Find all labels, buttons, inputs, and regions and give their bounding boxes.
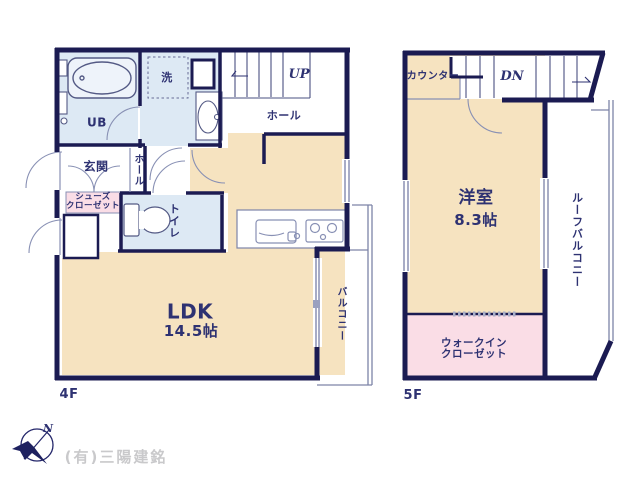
room-area-ldk: 14.5帖 bbox=[164, 324, 219, 340]
wic-line2: クローゼット bbox=[441, 349, 507, 360]
room-label-ldk: LDK bbox=[167, 302, 213, 323]
room-label-balcony: バルコニー bbox=[335, 287, 345, 342]
room-label-counter: カウンター bbox=[407, 72, 460, 83]
floor-plan-drawing bbox=[0, 0, 640, 480]
entrance-door-arc bbox=[26, 152, 62, 188]
pipe-space bbox=[192, 60, 214, 88]
roof-balcony-rail bbox=[591, 100, 613, 341]
stairs-up-arrow bbox=[232, 71, 248, 76]
storage-door-arc bbox=[29, 220, 62, 253]
compass-north-label: N bbox=[43, 423, 53, 435]
kitchen-counter bbox=[237, 210, 347, 248]
vanity-basin bbox=[196, 92, 222, 140]
room-label-roof-balcony: ルーフバルコニー bbox=[572, 192, 583, 288]
entry-storage bbox=[64, 215, 98, 258]
room-label-shoe-closet: シューズ クローゼット bbox=[66, 193, 120, 211]
toilet-fixture bbox=[124, 204, 170, 236]
room-label-unit-bath: UB bbox=[87, 117, 107, 130]
floor-label-4f: 4F bbox=[60, 388, 79, 402]
room-label-entrance: 玄関 bbox=[83, 161, 108, 174]
roof-balcony-corner bbox=[594, 341, 611, 379]
company-name: (有)三陽建銘 bbox=[65, 450, 168, 466]
floor-label-5f: 5F bbox=[404, 389, 423, 403]
room-label-toilet: トイレ bbox=[169, 203, 180, 239]
slider-handle bbox=[313, 300, 320, 308]
stairs-up-label: UP bbox=[288, 68, 309, 82]
room-label-walk-in-closet: ウォークイン クローゼット bbox=[441, 338, 507, 360]
room-label-hall-upper: ホール bbox=[267, 110, 302, 122]
washroom-door-arc bbox=[150, 148, 182, 180]
room-label-laundry: 洗 bbox=[161, 72, 173, 84]
room-area-western: 8.3帖 bbox=[454, 213, 498, 229]
floor-plan-page: UB 洗 UP ホール 玄関 ホール シューズ クローゼット トイレ LDK 1… bbox=[0, 0, 640, 480]
room-label-western: 洋室 bbox=[459, 190, 494, 208]
shoe-closet-line2: クローゼット bbox=[66, 202, 120, 211]
toilet-door-arc bbox=[153, 161, 185, 193]
bathtub bbox=[68, 58, 136, 98]
room-label-hall-entry: ホール bbox=[132, 154, 142, 187]
stairs-dn-label: DN bbox=[500, 70, 523, 84]
